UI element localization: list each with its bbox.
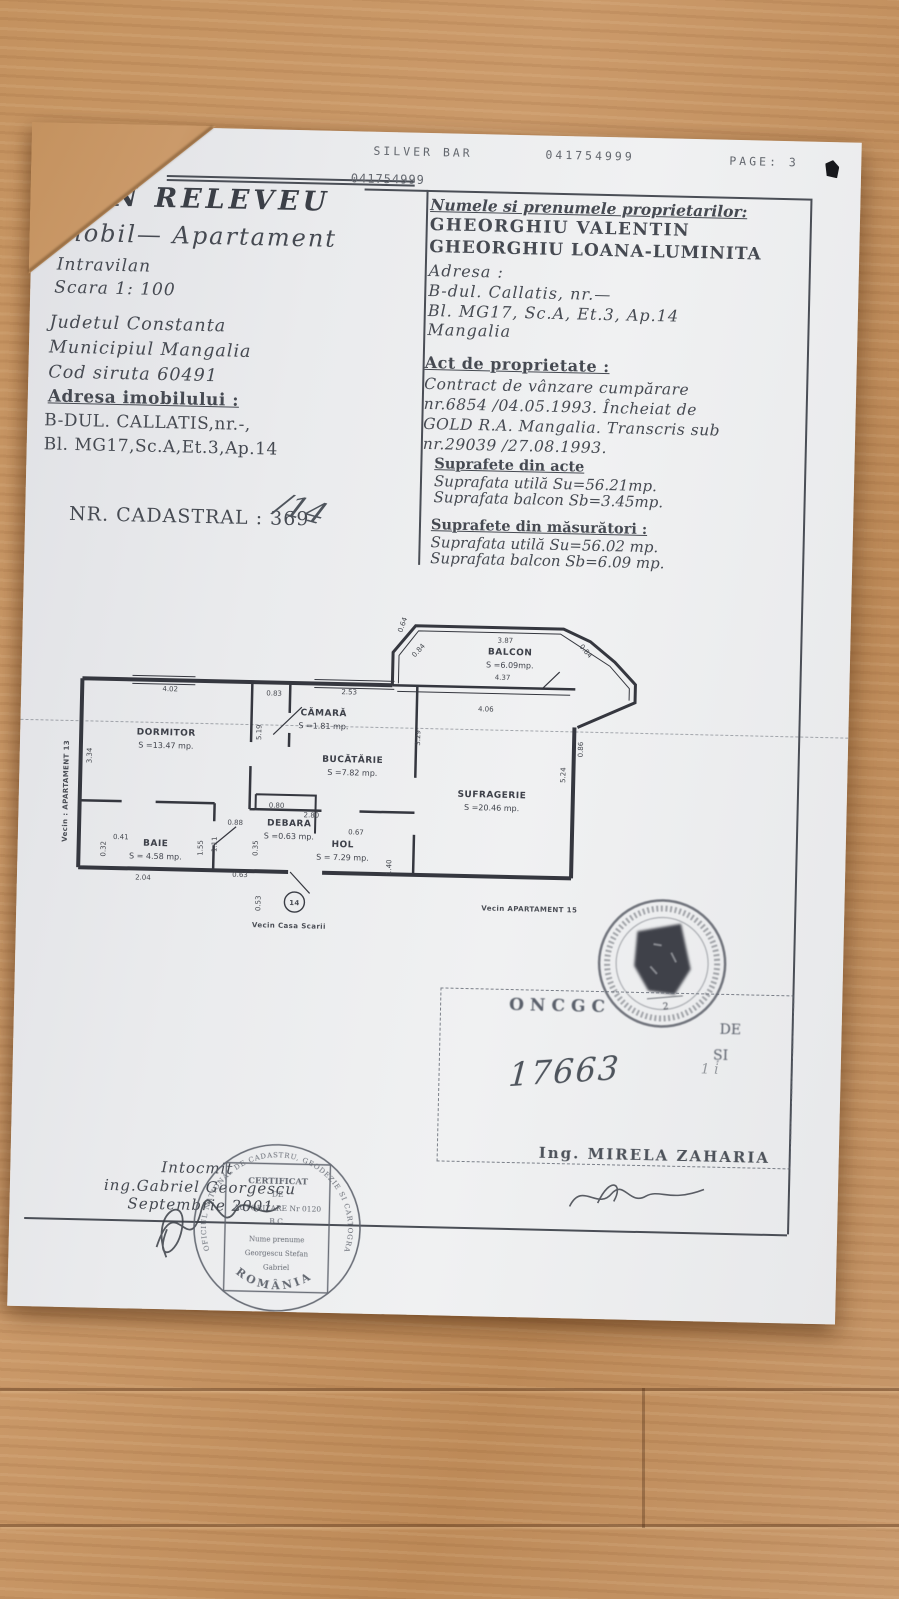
plan-dimension-label: 0.86 [577, 741, 585, 757]
entrance-number: 14 [289, 899, 300, 907]
plan-dimension-label: 2.80 [303, 811, 319, 819]
plan-dimension-label: 0.63 [232, 871, 248, 879]
plan-dimension-label: 0.35 [251, 840, 259, 856]
certificate-line3: AUTORIZARE Nr 0120 [233, 1203, 322, 1214]
certificate-line5: Nume prenume [249, 1235, 305, 1244]
plan-room-name: DORMITOR [137, 727, 196, 738]
plan-dimension-label: 4.06 [478, 705, 494, 713]
plan-room-area: S =0.63 mp. [264, 831, 314, 841]
certificate-line1: CERTIFICAT [248, 1176, 309, 1187]
plan-dimension-label: 0.32 [99, 841, 107, 857]
plan-dimension-label: 1.40 [385, 859, 393, 875]
address-heading: Adresa imobilului : [48, 386, 240, 410]
plan-dimension-label: 3.34 [86, 747, 94, 763]
plan-dimension-label: 0.84 [578, 643, 595, 660]
plan-dimension-label: 0.41 [113, 833, 129, 841]
plan-dimension-label: 0.84 [410, 642, 427, 659]
fax-page: PAGE: 3 [729, 154, 799, 170]
plan-room-area: S =7.82 mp. [327, 768, 377, 778]
neighbor-apt13-label: Vecin : APARTAMENT 13 [61, 740, 71, 842]
city-label: Municipiul Mangalia [49, 337, 252, 362]
owner-address-3: Mangalia [427, 320, 511, 341]
plan-dimension-label: 0.88 [227, 819, 243, 827]
plan-room-area: S =6.09mp. [486, 660, 534, 670]
plan-dimension-label: 0.83 [266, 689, 282, 697]
plan-room-name: CĂMARĂ [300, 706, 347, 719]
approval-handwritten-number: 17663 [507, 1049, 621, 1094]
plan-dimension-label: 4.37 [495, 674, 511, 682]
plan-dimension-label: 1.11 [211, 836, 219, 852]
neighbor-stairs-label: Vecin Casa Scarii [252, 921, 326, 931]
scale-label: Scara 1: 100 [54, 278, 176, 301]
plan-room-area: S = 4.58 mp. [129, 851, 182, 861]
intravilan-label: Intravilan [57, 255, 152, 277]
approval-faint-text1: ONCGC [509, 995, 611, 1017]
plan-dimension-label: 3.87 [498, 637, 514, 645]
certificate-stamp: OFICIUL NATIONAL DE CADASTRU, GEODEZIE S… [155, 1117, 399, 1322]
plan-dimension-label: 3.29 [414, 730, 422, 746]
plan-dimension-label: 2.53 [341, 688, 357, 696]
certificate-line4: B.C. [269, 1217, 285, 1226]
approval-faint-text2: DE [719, 1022, 741, 1038]
fax-number: 041754999 [545, 148, 635, 164]
plan-room-name: BAIE [143, 839, 169, 850]
address-line2: Bl. MG17,Sc.A,Et.3,Ap.14 [44, 434, 278, 459]
plan-room-name: BUCĂTĂRIE [322, 753, 383, 766]
siruta-label: Cod siruta 60491 [48, 362, 218, 386]
fax-inline-number: 041754999 [351, 171, 425, 187]
photo-scene: 8134 SILVER BAR 041754999 PAGE: 3 PLAN R… [0, 0, 899, 1599]
coat-of-arms-blob [631, 923, 693, 997]
engineer-signature [557, 1166, 718, 1225]
fax-station: SILVER BAR [373, 144, 473, 160]
certificate-line7: Gabriel [263, 1263, 290, 1272]
plan-room-area: S =20.46 mp. [464, 803, 519, 813]
plan-room-name: DEBARA [267, 818, 312, 829]
wood-plank-seam [0, 1524, 899, 1527]
county-label: Judetul Constanta [49, 312, 226, 336]
plan-dimension-label: 0.80 [269, 802, 285, 810]
plan-room-area: S =1.81 mp. [298, 721, 348, 731]
property-act-heading: Act de proprietate : [424, 353, 609, 376]
owner-address-label: Adresa : [429, 261, 505, 282]
document-paper: 8134 SILVER BAR 041754999 PAGE: 3 PLAN R… [7, 124, 862, 1324]
plan-dimension-label: 0.53 [254, 895, 262, 911]
plan-dimension-label: 5.19 [255, 724, 263, 740]
plan-room-name: BALCON [488, 647, 533, 658]
plan-room-area: S = 7.29 mp. [316, 853, 369, 863]
plan-dimension-label: 5.24 [559, 767, 567, 783]
wood-plank-seam [0, 1388, 899, 1391]
plan-dimension-label: 4.02 [162, 685, 178, 693]
plan-room-name: SUFRAGERIE [457, 790, 526, 802]
certificate-line2: DE [272, 1190, 284, 1199]
plan-room-area: S =13.47 mp. [138, 741, 193, 751]
plan-dimension-label: 0.64 [396, 616, 409, 634]
plan-dimension-label: 1.55 [196, 840, 204, 856]
ink-blot-mark [825, 160, 839, 178]
plan-balcony-wall [391, 625, 636, 728]
approval-handwritten-note: 1 i [701, 1061, 719, 1077]
address-line1: B-DUL. CALLATIS,nr.-, [44, 410, 251, 435]
plan-dimension-label: 0.67 [348, 828, 364, 836]
plan-room-name: HOL [331, 840, 354, 851]
areas-acts-line2: Suprafata balcon Sb=3.45mp. [433, 488, 663, 511]
plan-dimension-label: 2.04 [135, 873, 151, 881]
owner-name-2: GHEORGHIU LOANA-LUMINITA [429, 237, 762, 265]
neighbor-apt15-label: Vecin APARTAMENT 15 [481, 904, 577, 914]
certificate-line6: Georgescu Stefan [245, 1249, 309, 1258]
property-act-line4: nr.29039 /27.08.1993. [423, 435, 608, 457]
wood-plank-joint [642, 1388, 645, 1528]
